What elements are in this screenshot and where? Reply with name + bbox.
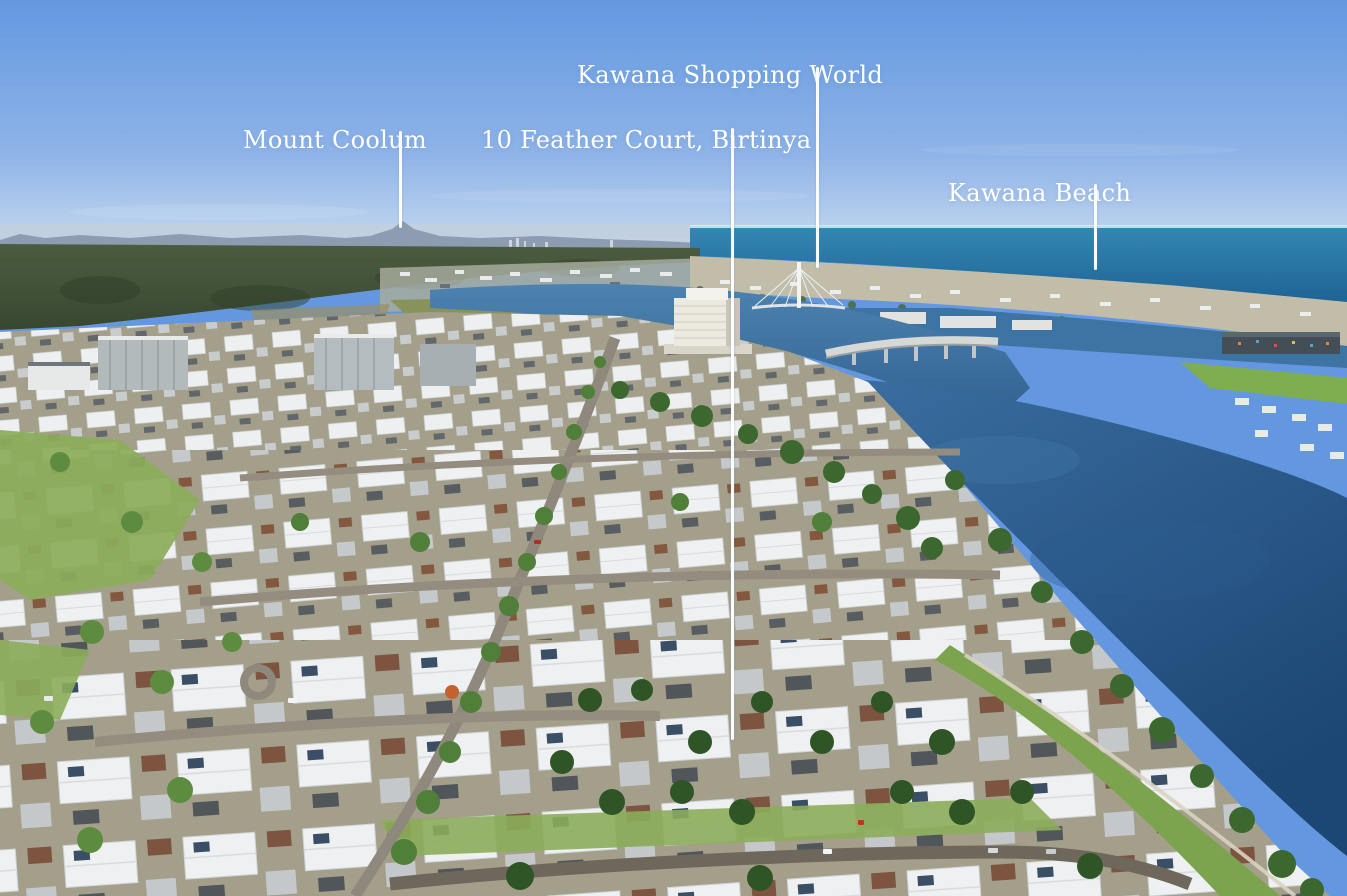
annotation-pointer-line-kawana-beach bbox=[1094, 184, 1097, 270]
annotation-pointer-line-feather-court bbox=[731, 128, 734, 740]
annotation-label-kawana-beach: Kawana Beach bbox=[948, 179, 1131, 207]
annotation-pointer-line-kawana-shopping-world bbox=[816, 67, 819, 268]
aerial-photo: Kawana Shopping World Mount Coolum 10 Fe… bbox=[0, 0, 1347, 896]
sports-field bbox=[1180, 362, 1347, 404]
flowering-tree bbox=[445, 685, 459, 699]
annotation-pointer-line-mount-coolum bbox=[399, 131, 402, 228]
lakeside-office-building bbox=[1222, 332, 1340, 354]
annotation-label-kawana-shopping-world: Kawana Shopping World bbox=[577, 61, 883, 89]
far-shore-houses bbox=[1235, 398, 1344, 459]
annotation-label-feather-court: 10 Feather Court, Birtinya bbox=[481, 126, 811, 154]
